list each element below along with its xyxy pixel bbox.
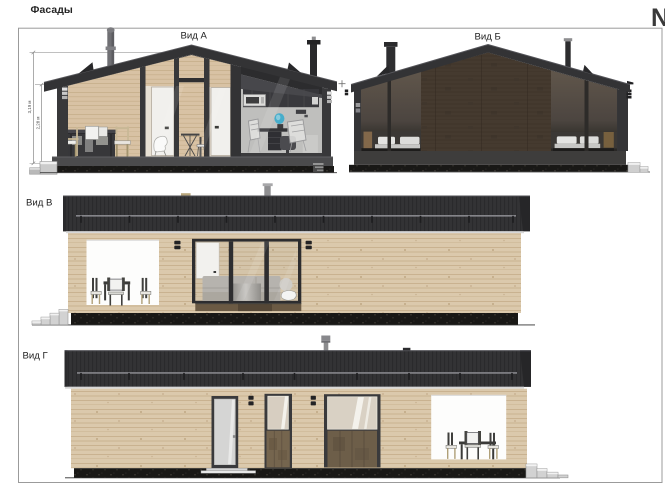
svg-text:Вид Г: Вид Г <box>23 351 49 362</box>
svg-text:Вид Б: Вид Б <box>475 32 501 43</box>
svg-text:3,19 м: 3,19 м <box>27 101 32 114</box>
svg-text:2,28 м: 2,28 м <box>35 117 40 130</box>
svg-text:Вид В: Вид В <box>26 198 52 209</box>
svg-text:Фасады: Фасады <box>31 5 73 16</box>
svg-text:Вид А: Вид А <box>181 31 208 42</box>
